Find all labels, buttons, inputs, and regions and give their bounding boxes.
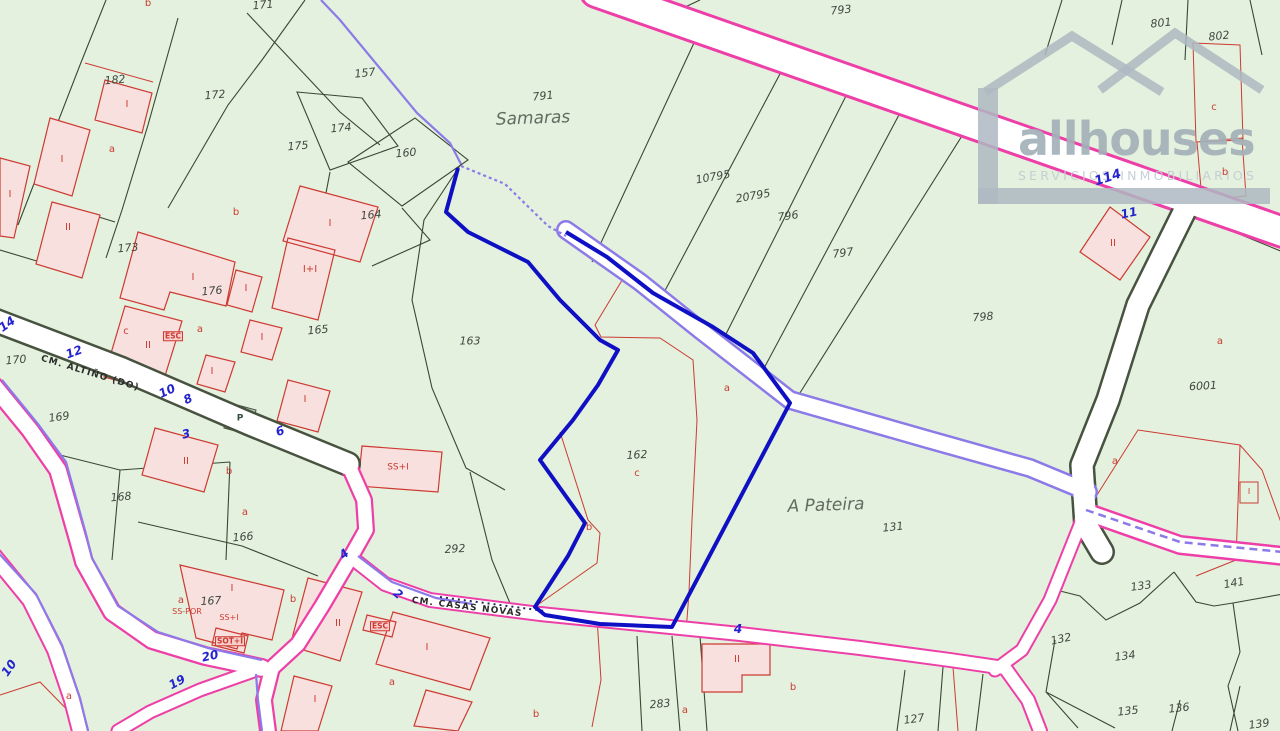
house-base-icon — [978, 188, 1270, 204]
building-footprints — [0, 80, 1150, 731]
roof-icon — [1100, 33, 1262, 90]
highlighted-parcel-outline — [446, 168, 790, 627]
house-wall-icon — [978, 88, 998, 204]
map-graphics: allhouses SERVICIOS INMOBILIARIOS — [0, 0, 1280, 731]
cadastral-map: allhouses SERVICIOS INMOBILIARIOS 182171… — [0, 0, 1280, 731]
logo-subtitle: SERVICIOS INMOBILIARIOS — [1018, 168, 1257, 183]
logo-title: allhouses — [1018, 112, 1255, 166]
brand-logo: allhouses SERVICIOS INMOBILIARIOS — [978, 33, 1270, 204]
